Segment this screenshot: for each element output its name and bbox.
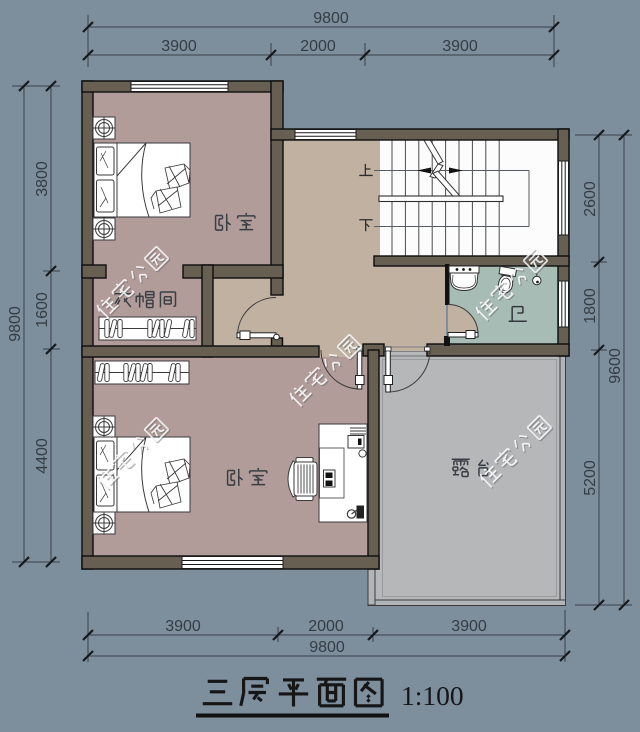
svg-text:3800: 3800 [34,161,51,197]
svg-text:9800: 9800 [309,639,345,656]
svg-text:2000: 2000 [308,618,344,635]
svg-text:1600: 1600 [34,292,51,328]
svg-text:9800: 9800 [7,306,24,342]
svg-text:3900: 3900 [442,38,478,55]
svg-text:9800: 9800 [313,10,349,27]
svg-text:4400: 4400 [34,438,51,474]
svg-text:2000: 2000 [300,38,336,55]
svg-text:5200: 5200 [582,460,599,496]
svg-text:3900: 3900 [165,618,201,635]
svg-text:3900: 3900 [161,38,197,55]
svg-text:3900: 3900 [451,618,487,635]
svg-text:1:100: 1:100 [401,680,464,711]
svg-text:1800: 1800 [582,288,599,324]
svg-text:9600: 9600 [607,348,624,384]
svg-text:2600: 2600 [582,181,599,217]
